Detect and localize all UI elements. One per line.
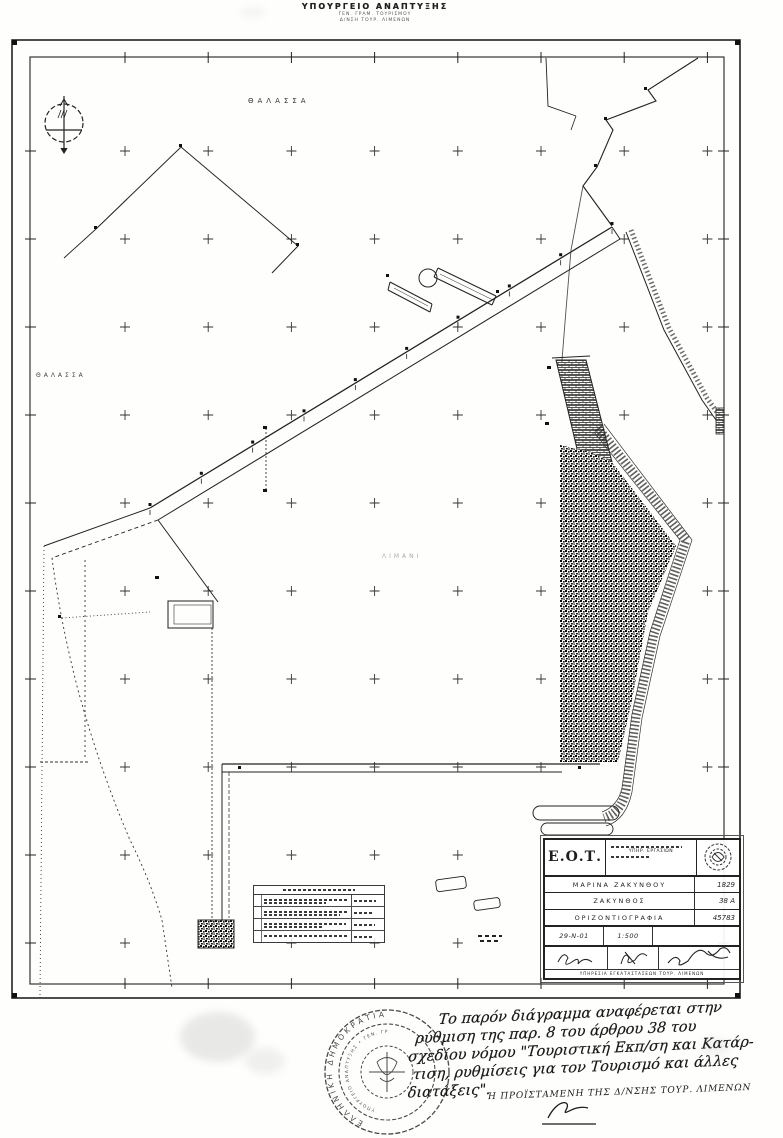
quay-point bbox=[559, 253, 562, 256]
grid-cross bbox=[203, 410, 213, 420]
legend-table bbox=[253, 885, 385, 943]
empty-cell bbox=[653, 927, 739, 944]
title-block-date-scale-row: 29-Ν-01 1:500 bbox=[545, 927, 739, 946]
scan-smudge bbox=[180, 1012, 255, 1062]
grid-cross bbox=[702, 586, 712, 596]
harbor-mouth-line bbox=[562, 186, 583, 360]
legend-text-cell bbox=[262, 931, 351, 942]
breakwater-rubble-fill bbox=[560, 445, 676, 762]
grid-cross bbox=[702, 674, 712, 684]
grid-cross bbox=[120, 498, 130, 508]
quay-point bbox=[251, 441, 254, 444]
grid-cross bbox=[203, 146, 213, 156]
grid-cross bbox=[453, 850, 463, 860]
sea-label-top: ΘΑΛΑΣΣΑ bbox=[248, 97, 310, 105]
scan-smudge bbox=[700, 1038, 730, 1056]
grid-cross bbox=[453, 498, 463, 508]
legend-value-cell bbox=[351, 919, 384, 930]
legend-index-cell bbox=[254, 919, 262, 930]
grid-cross bbox=[286, 498, 296, 508]
grid-cross bbox=[453, 938, 463, 948]
grid-cross bbox=[370, 586, 380, 596]
drawing-date: 29-Ν-01 bbox=[545, 927, 604, 944]
grid-cross bbox=[619, 146, 629, 156]
grid-cross bbox=[702, 234, 712, 244]
stamp-outer-text: ΕΛΛΗΝΙΚΗ ΔΗΜΟΚΡΑΤΙΑ bbox=[325, 1010, 387, 1128]
grid-cross bbox=[702, 498, 712, 508]
grid-cross bbox=[120, 410, 130, 420]
title-block-row: ΟΡΙΖΟΝΤΙΟΓΡΑΦΙΑ 45783 bbox=[545, 910, 739, 928]
grid-cross bbox=[370, 322, 380, 332]
grid-cross bbox=[370, 850, 380, 860]
basin-marker-line bbox=[263, 426, 267, 492]
location-number: 38 Α bbox=[694, 893, 739, 909]
drawing-type: ΟΡΙΖΟΝΤΙΟΓΡΑΦΙΑ bbox=[545, 910, 694, 926]
signature-icon bbox=[664, 947, 734, 969]
quay-point bbox=[508, 284, 511, 287]
grid-cross bbox=[370, 674, 380, 684]
legend-text-cell bbox=[262, 907, 351, 918]
legend-index-cell bbox=[254, 895, 262, 906]
grid-cross bbox=[453, 146, 463, 156]
signature-icon bbox=[554, 948, 598, 968]
title-block-footer: ΥΠΗΡΕΣΙΑ ΕΓΚΑΤΑΣΤΑΣΕΩΝ ΤΟΥΡ. ΛΙΜΕΝΩΝ bbox=[545, 970, 739, 978]
grid-cross bbox=[286, 850, 296, 860]
grid-cross bbox=[286, 674, 296, 684]
title-block-dept: ΥΠΗΡ. ΕΡΓΑΣΙΩΝ bbox=[606, 840, 697, 875]
dept-label: ΥΠΗΡ. ΕΡΓΑΣΙΩΝ bbox=[609, 849, 693, 854]
svg-text:ΕΛΛΗΝΙΚΗ ΔΗΜΟΚΡΑΤΙΑ: ΕΛΛΗΝΙΚΗ ΔΗΜΟΚΡΑΤΙΑ bbox=[325, 1010, 387, 1128]
legend-index-cell bbox=[254, 931, 262, 942]
signature-icon bbox=[615, 948, 651, 968]
grid-cross bbox=[203, 674, 213, 684]
signature-cell bbox=[608, 947, 659, 969]
svg-text:ΥΠΟΥΡΓΕΙΟ ΑΝΑΠΤΥΞΗΣ • ΓΕΝ. ΓΡΑ: ΥΠΟΥΡΓΕΙΟ ΑΝΑΠΤΥΞΗΣ • ΓΕΝ. ΓΡΑΜ. ΤΟΥΡΙΣΜ… bbox=[312, 1004, 389, 1113]
grid-cross bbox=[286, 586, 296, 596]
grid-cross bbox=[286, 410, 296, 420]
harbor-label: ΛΙΜΑΝΙ bbox=[382, 553, 421, 560]
location-name: ΖΑΚΥΝΘΟΣ bbox=[545, 893, 694, 909]
grid-cross bbox=[702, 410, 712, 420]
grid-cross bbox=[536, 146, 546, 156]
title-block-row: ΜΑΡΙΝΑ ΖΑΚΥΝΘΟΥ 1829 bbox=[545, 877, 739, 894]
grid-cross bbox=[536, 586, 546, 596]
signature-cell bbox=[545, 947, 608, 969]
legend-value-cell bbox=[351, 895, 384, 906]
signoff-signature-icon bbox=[540, 1096, 604, 1130]
quay-survey-points bbox=[149, 222, 614, 515]
quay-point bbox=[149, 503, 152, 506]
grid-cross bbox=[120, 322, 130, 332]
drawing-scale: 1:500 bbox=[604, 927, 653, 944]
grid-cross bbox=[120, 938, 130, 948]
legend-row bbox=[254, 907, 384, 919]
scanned-harbor-plan-page: ΥΠΟΥΡΓΕΙΟ ΑΝΑΠΤΥΞΗΣ ΓΕΝ. ΓΡΑΜ. ΤΟΥΡΙΣΜΟΥ… bbox=[0, 0, 783, 1138]
grid-cross bbox=[453, 410, 463, 420]
grid-cross bbox=[120, 146, 130, 156]
eot-org-label: Ε.Ο.Τ. bbox=[545, 840, 606, 875]
grid-cross bbox=[120, 586, 130, 596]
quay-point bbox=[457, 316, 460, 319]
compass-rose-icon bbox=[45, 96, 83, 153]
sea-label-left: ΘΑΛΑΣΣΑ bbox=[36, 372, 86, 379]
grid-cross bbox=[370, 498, 380, 508]
grid-cross bbox=[619, 322, 629, 332]
coastline-upper-right bbox=[546, 58, 698, 226]
grid-cross bbox=[286, 146, 296, 156]
grid-cross bbox=[203, 850, 213, 860]
project-number: 1829 bbox=[694, 877, 739, 893]
grid-cross bbox=[203, 498, 213, 508]
quay-point bbox=[405, 347, 408, 350]
legend-value-cell bbox=[351, 907, 384, 918]
grid-cross bbox=[203, 234, 213, 244]
small-structures bbox=[435, 876, 502, 941]
grid-cross bbox=[120, 850, 130, 860]
title-block-row: ΖΑΚΥΝΘΟΣ 38 Α bbox=[545, 893, 739, 910]
grid-cross bbox=[536, 498, 546, 508]
title-block-signature-row bbox=[545, 947, 739, 970]
grid-cross bbox=[370, 410, 380, 420]
grid-cross bbox=[536, 322, 546, 332]
legend-row bbox=[254, 919, 384, 931]
grid-cross bbox=[536, 410, 546, 420]
grid-cross bbox=[120, 234, 130, 244]
quay-point bbox=[354, 378, 357, 381]
quay-point bbox=[303, 409, 306, 412]
grid-cross bbox=[453, 674, 463, 684]
signature-cell bbox=[659, 947, 739, 969]
scan-smudge bbox=[240, 8, 266, 16]
grid-cross bbox=[702, 146, 712, 156]
legend-header bbox=[254, 886, 384, 895]
eot-seal-icon bbox=[701, 841, 735, 873]
grid-cross bbox=[203, 762, 213, 772]
legend-text-cell bbox=[262, 895, 351, 906]
grid-cross bbox=[286, 234, 296, 244]
legend-text-cell bbox=[262, 919, 351, 930]
grid-cross bbox=[370, 234, 380, 244]
title-block: Ε.Ο.Τ. ΥΠΗΡ. ΕΡΓΑΣΙΩΝ ΜΑΡΙΝΑ ΖΑΚΥΝΘΟΥ 18… bbox=[543, 838, 741, 980]
grid-cross bbox=[120, 762, 130, 772]
stamp-inner-text: ΥΠΟΥΡΓΕΙΟ ΑΝΑΠΤΥΞΗΣ • ΓΕΝ. ΓΡΑΜ. ΤΟΥΡΙΣΜ… bbox=[312, 1004, 389, 1113]
grid-cross bbox=[203, 586, 213, 596]
grid-cross bbox=[702, 762, 712, 772]
coastline-upper-left bbox=[64, 144, 299, 273]
grid-cross bbox=[536, 674, 546, 684]
legend-index-cell bbox=[254, 907, 262, 918]
outer-coast-riprap bbox=[626, 230, 724, 434]
quay-point bbox=[200, 472, 203, 475]
eot-logo-cell bbox=[697, 840, 739, 875]
grid-cross bbox=[286, 322, 296, 332]
grid-cross bbox=[536, 234, 546, 244]
scan-smudge bbox=[245, 1048, 285, 1074]
grid-cross bbox=[453, 586, 463, 596]
grid-cross bbox=[120, 674, 130, 684]
grid-cross bbox=[702, 322, 712, 332]
drawing-number: 45783 bbox=[694, 910, 739, 926]
main-quay bbox=[44, 227, 620, 602]
title-block-header-row: Ε.Ο.Τ. ΥΠΗΡ. ΕΡΓΑΣΙΩΝ bbox=[545, 840, 739, 877]
grid-cross bbox=[619, 410, 629, 420]
legend-row bbox=[254, 895, 384, 907]
legend-row bbox=[254, 931, 384, 942]
grid-cross bbox=[203, 322, 213, 332]
project-name: ΜΑΡΙΝΑ ΖΑΚΥΝΘΟΥ bbox=[545, 877, 694, 893]
grid-cross bbox=[370, 146, 380, 156]
left-parcels bbox=[40, 546, 213, 995]
quay-point bbox=[611, 222, 614, 225]
legend-value-cell bbox=[351, 931, 384, 942]
grid-cross bbox=[453, 234, 463, 244]
